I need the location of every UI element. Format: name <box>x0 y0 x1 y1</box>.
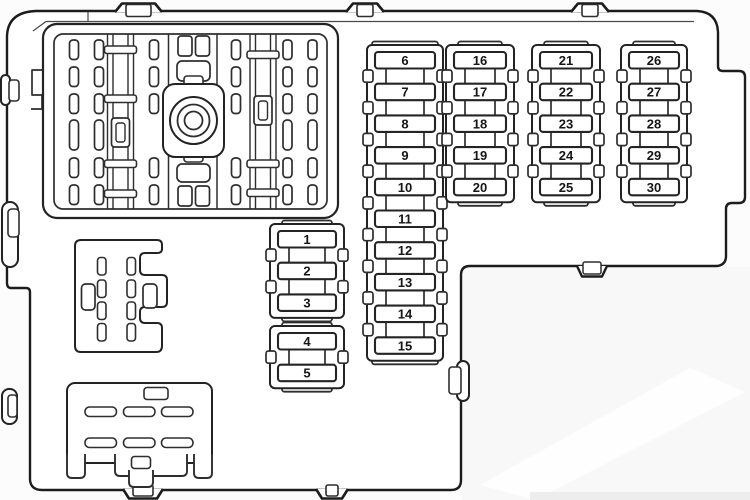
top-tab-inner <box>357 5 373 17</box>
rail-window-slot <box>116 123 125 142</box>
strip-notch <box>437 324 447 336</box>
strip-1-5: 12345 <box>266 221 348 392</box>
strip-notch <box>508 102 518 114</box>
pin-slot <box>95 94 104 114</box>
pin-slot <box>127 258 136 276</box>
bottom-tab-inner <box>326 485 338 496</box>
rail-clamp <box>105 95 137 103</box>
fuse-label-13: 13 <box>398 275 412 290</box>
pin-slot-tall <box>283 120 292 150</box>
strip-notch <box>363 229 373 241</box>
rail-clamp <box>247 51 279 59</box>
fuse-label-20: 20 <box>473 180 487 195</box>
strip-notch <box>528 165 538 177</box>
pin-slot <box>132 457 151 469</box>
pin-slot <box>95 185 104 205</box>
background-shading <box>462 267 750 500</box>
strip-notch <box>594 102 604 114</box>
shadow-band <box>530 492 750 500</box>
strip-notch <box>528 133 538 145</box>
edge-clip-inner <box>9 80 19 101</box>
fuse-label-17: 17 <box>473 85 487 100</box>
strip-21-25: 2122232425 <box>528 42 604 206</box>
strip-notch <box>681 70 691 82</box>
fuse-label-14: 14 <box>398 307 413 322</box>
rail-clamp <box>247 160 279 168</box>
strip-notch <box>681 102 691 114</box>
strip-notch <box>266 281 276 293</box>
strip-notch <box>437 292 447 304</box>
blade-slot <box>162 438 194 448</box>
pin-slot-wide <box>177 164 210 182</box>
pin-slot <box>70 40 79 60</box>
pin-slot <box>98 302 107 320</box>
pin-slot <box>232 94 241 114</box>
bottom-connector-body <box>67 383 212 463</box>
fuse-label-9: 9 <box>401 148 408 163</box>
pin-slot <box>150 158 159 178</box>
rail-clamp <box>247 189 279 197</box>
strip-notch <box>338 249 348 261</box>
fuse-label-2: 2 <box>303 264 310 279</box>
strip-notch <box>363 197 373 209</box>
connector-foot <box>194 454 212 478</box>
pin-slot <box>98 324 107 342</box>
pin-slot <box>95 67 104 87</box>
pin-slot <box>196 186 210 206</box>
pin-slot-tall <box>82 284 96 310</box>
strip-notch <box>617 102 627 114</box>
rail-clamp <box>105 190 137 198</box>
strip-notch <box>266 249 276 261</box>
fuse-label-1: 1 <box>303 232 310 247</box>
blade-slot <box>85 438 117 448</box>
strip-notch <box>617 165 627 177</box>
fuse-box-diagram: 1234567891011121314151617181920212223242… <box>0 0 750 500</box>
pin-slot <box>308 185 317 205</box>
pin-slot <box>98 258 107 276</box>
fuse-label-11: 11 <box>398 212 412 227</box>
pin-slot-tall <box>70 120 79 150</box>
fuse-label-12: 12 <box>398 243 412 258</box>
strip-notch <box>363 70 373 82</box>
pin-slot <box>308 94 317 114</box>
fuse-label-16: 16 <box>473 53 487 68</box>
top-tab-inner <box>582 5 598 17</box>
fuse-label-22: 22 <box>559 85 573 100</box>
strip-notch <box>363 133 373 145</box>
fuse-label-28: 28 <box>647 116 661 131</box>
edge-clip-inner <box>449 367 461 394</box>
strip-notch <box>363 324 373 336</box>
strip-notch <box>363 102 373 114</box>
pin-slot <box>283 158 292 178</box>
fuse-label-24: 24 <box>559 148 574 163</box>
strip-notch <box>594 70 604 82</box>
strip-notch <box>363 165 373 177</box>
fuse-label-30: 30 <box>647 180 661 195</box>
pin-slot <box>308 67 317 87</box>
pin-slot <box>70 67 79 87</box>
connector-foot <box>67 454 85 478</box>
rail-clamp <box>105 46 137 54</box>
fuse-label-27: 27 <box>647 85 661 100</box>
pin-slot <box>232 67 241 87</box>
strip-notch <box>594 133 604 145</box>
pin-slot <box>144 388 168 400</box>
fuse-label-3: 3 <box>303 295 310 310</box>
fuse-label-10: 10 <box>398 180 412 195</box>
strip-notch <box>617 70 627 82</box>
strip-notch <box>442 133 452 145</box>
blade-slot <box>162 407 194 417</box>
diagram-canvas: 1234567891011121314151617181920212223242… <box>0 0 750 500</box>
blade-slot <box>85 407 117 417</box>
blade-slot <box>124 407 156 417</box>
fuse-label-29: 29 <box>647 148 661 163</box>
strip-notch <box>338 281 348 293</box>
rail-window-slot <box>259 101 268 120</box>
pin-slot <box>196 36 210 56</box>
fuse-label-25: 25 <box>559 180 573 195</box>
pin-slot <box>178 186 192 206</box>
strip-16-20: 1617181920 <box>442 42 518 206</box>
fuse-label-26: 26 <box>647 53 661 68</box>
rail-clamp <box>105 160 137 168</box>
strip-notch <box>442 70 452 82</box>
strip-6-15: 6789101112131415 <box>363 42 447 365</box>
pin-slot <box>178 36 192 56</box>
pin-slot <box>70 158 79 178</box>
strip-notch <box>508 165 518 177</box>
pin-slot <box>232 158 241 178</box>
pin-slot <box>283 94 292 114</box>
strip-notch <box>681 133 691 145</box>
pin-slot <box>283 185 292 205</box>
pin-slot-tall <box>95 120 104 150</box>
pin-slot <box>232 40 241 60</box>
strip-notch <box>528 102 538 114</box>
pin-slot <box>150 94 159 114</box>
large-connector <box>43 24 338 218</box>
blade-slot <box>124 438 156 448</box>
pin-slot <box>70 94 79 114</box>
strip-notch <box>338 351 348 363</box>
strip-notch <box>528 70 538 82</box>
top-tab-inner <box>126 5 151 17</box>
fuse-label-7: 7 <box>401 85 408 100</box>
pin-slot <box>283 40 292 60</box>
fuse-label-4: 4 <box>303 334 311 349</box>
shelf-tab-inner <box>583 262 601 274</box>
edge-clip-inner <box>8 395 17 417</box>
strip-notch <box>681 165 691 177</box>
pin-slot <box>95 40 104 60</box>
pin-slot <box>150 40 159 60</box>
strip-notch <box>442 102 452 114</box>
fuse-label-15: 15 <box>398 338 412 353</box>
strip-notch <box>363 260 373 272</box>
fuse-label-23: 23 <box>559 116 573 131</box>
fuse-label-19: 19 <box>473 148 487 163</box>
strip-notch <box>437 229 447 241</box>
fuse-label-8: 8 <box>401 116 408 131</box>
pin-slot-tall <box>143 284 157 308</box>
pin-slot <box>95 158 104 178</box>
pin-slot <box>127 324 136 342</box>
fuse-label-6: 6 <box>401 53 408 68</box>
pin-slot <box>98 280 107 298</box>
pin-slot <box>150 67 159 87</box>
pin-slot-tall <box>308 120 317 150</box>
strip-notch <box>437 260 447 272</box>
strip-notch <box>508 70 518 82</box>
pin-slot <box>232 185 241 205</box>
strip-notch <box>442 165 452 177</box>
strip-notch <box>594 165 604 177</box>
pin-slot <box>308 40 317 60</box>
strip-notch <box>617 133 627 145</box>
fuse-label-18: 18 <box>473 116 487 131</box>
fuse-label-5: 5 <box>303 366 310 381</box>
pin-slot <box>70 185 79 205</box>
pin-slot <box>150 185 159 205</box>
edge-clip-inner <box>8 209 19 237</box>
pin-slot <box>127 280 136 298</box>
connector-foot-tab <box>129 470 153 487</box>
pin-slot <box>308 158 317 178</box>
pin-slot <box>127 302 136 320</box>
strip-26-30: 2627282930 <box>617 42 691 206</box>
pin-slot <box>283 67 292 87</box>
strip-notch <box>508 133 518 145</box>
strip-notch <box>266 351 276 363</box>
fuse-label-21: 21 <box>559 53 573 68</box>
strip-notch <box>363 292 373 304</box>
